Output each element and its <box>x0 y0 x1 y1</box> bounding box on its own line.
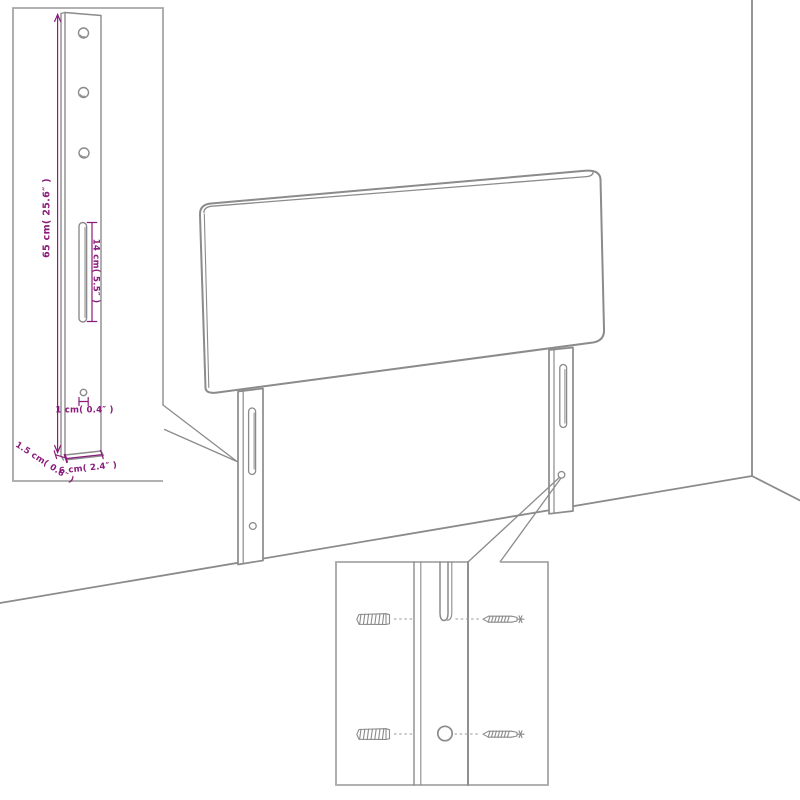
callout-line-right <box>500 479 561 562</box>
leg-outline <box>238 389 263 565</box>
headboard-dimension-diagram: 65 cm( 25.6″ ) 14 cm( 5.5″ ) 1 cm( 0.4″ … <box>0 0 800 800</box>
callout-line-left <box>468 478 559 562</box>
headboard <box>200 171 604 565</box>
hardware-detail-inset <box>336 478 561 785</box>
floor-line-right <box>752 476 800 501</box>
hole-dim-label: 1 cm( 0.4″ ) <box>55 406 113 416</box>
headboard-panel <box>200 171 604 393</box>
height-dim-label: 65 cm( 25.6″ ) <box>42 178 53 258</box>
inset-background <box>336 562 548 785</box>
inset-callout-lines <box>468 478 561 562</box>
panel-outline <box>200 171 604 393</box>
inset-callout-lines <box>163 405 237 462</box>
bracket-drawing <box>61 13 104 461</box>
bracket-front-face <box>65 13 101 456</box>
headboard-leg-left <box>238 389 263 565</box>
slot-dim-label: 14 cm( 5.5″ ) <box>91 239 101 304</box>
